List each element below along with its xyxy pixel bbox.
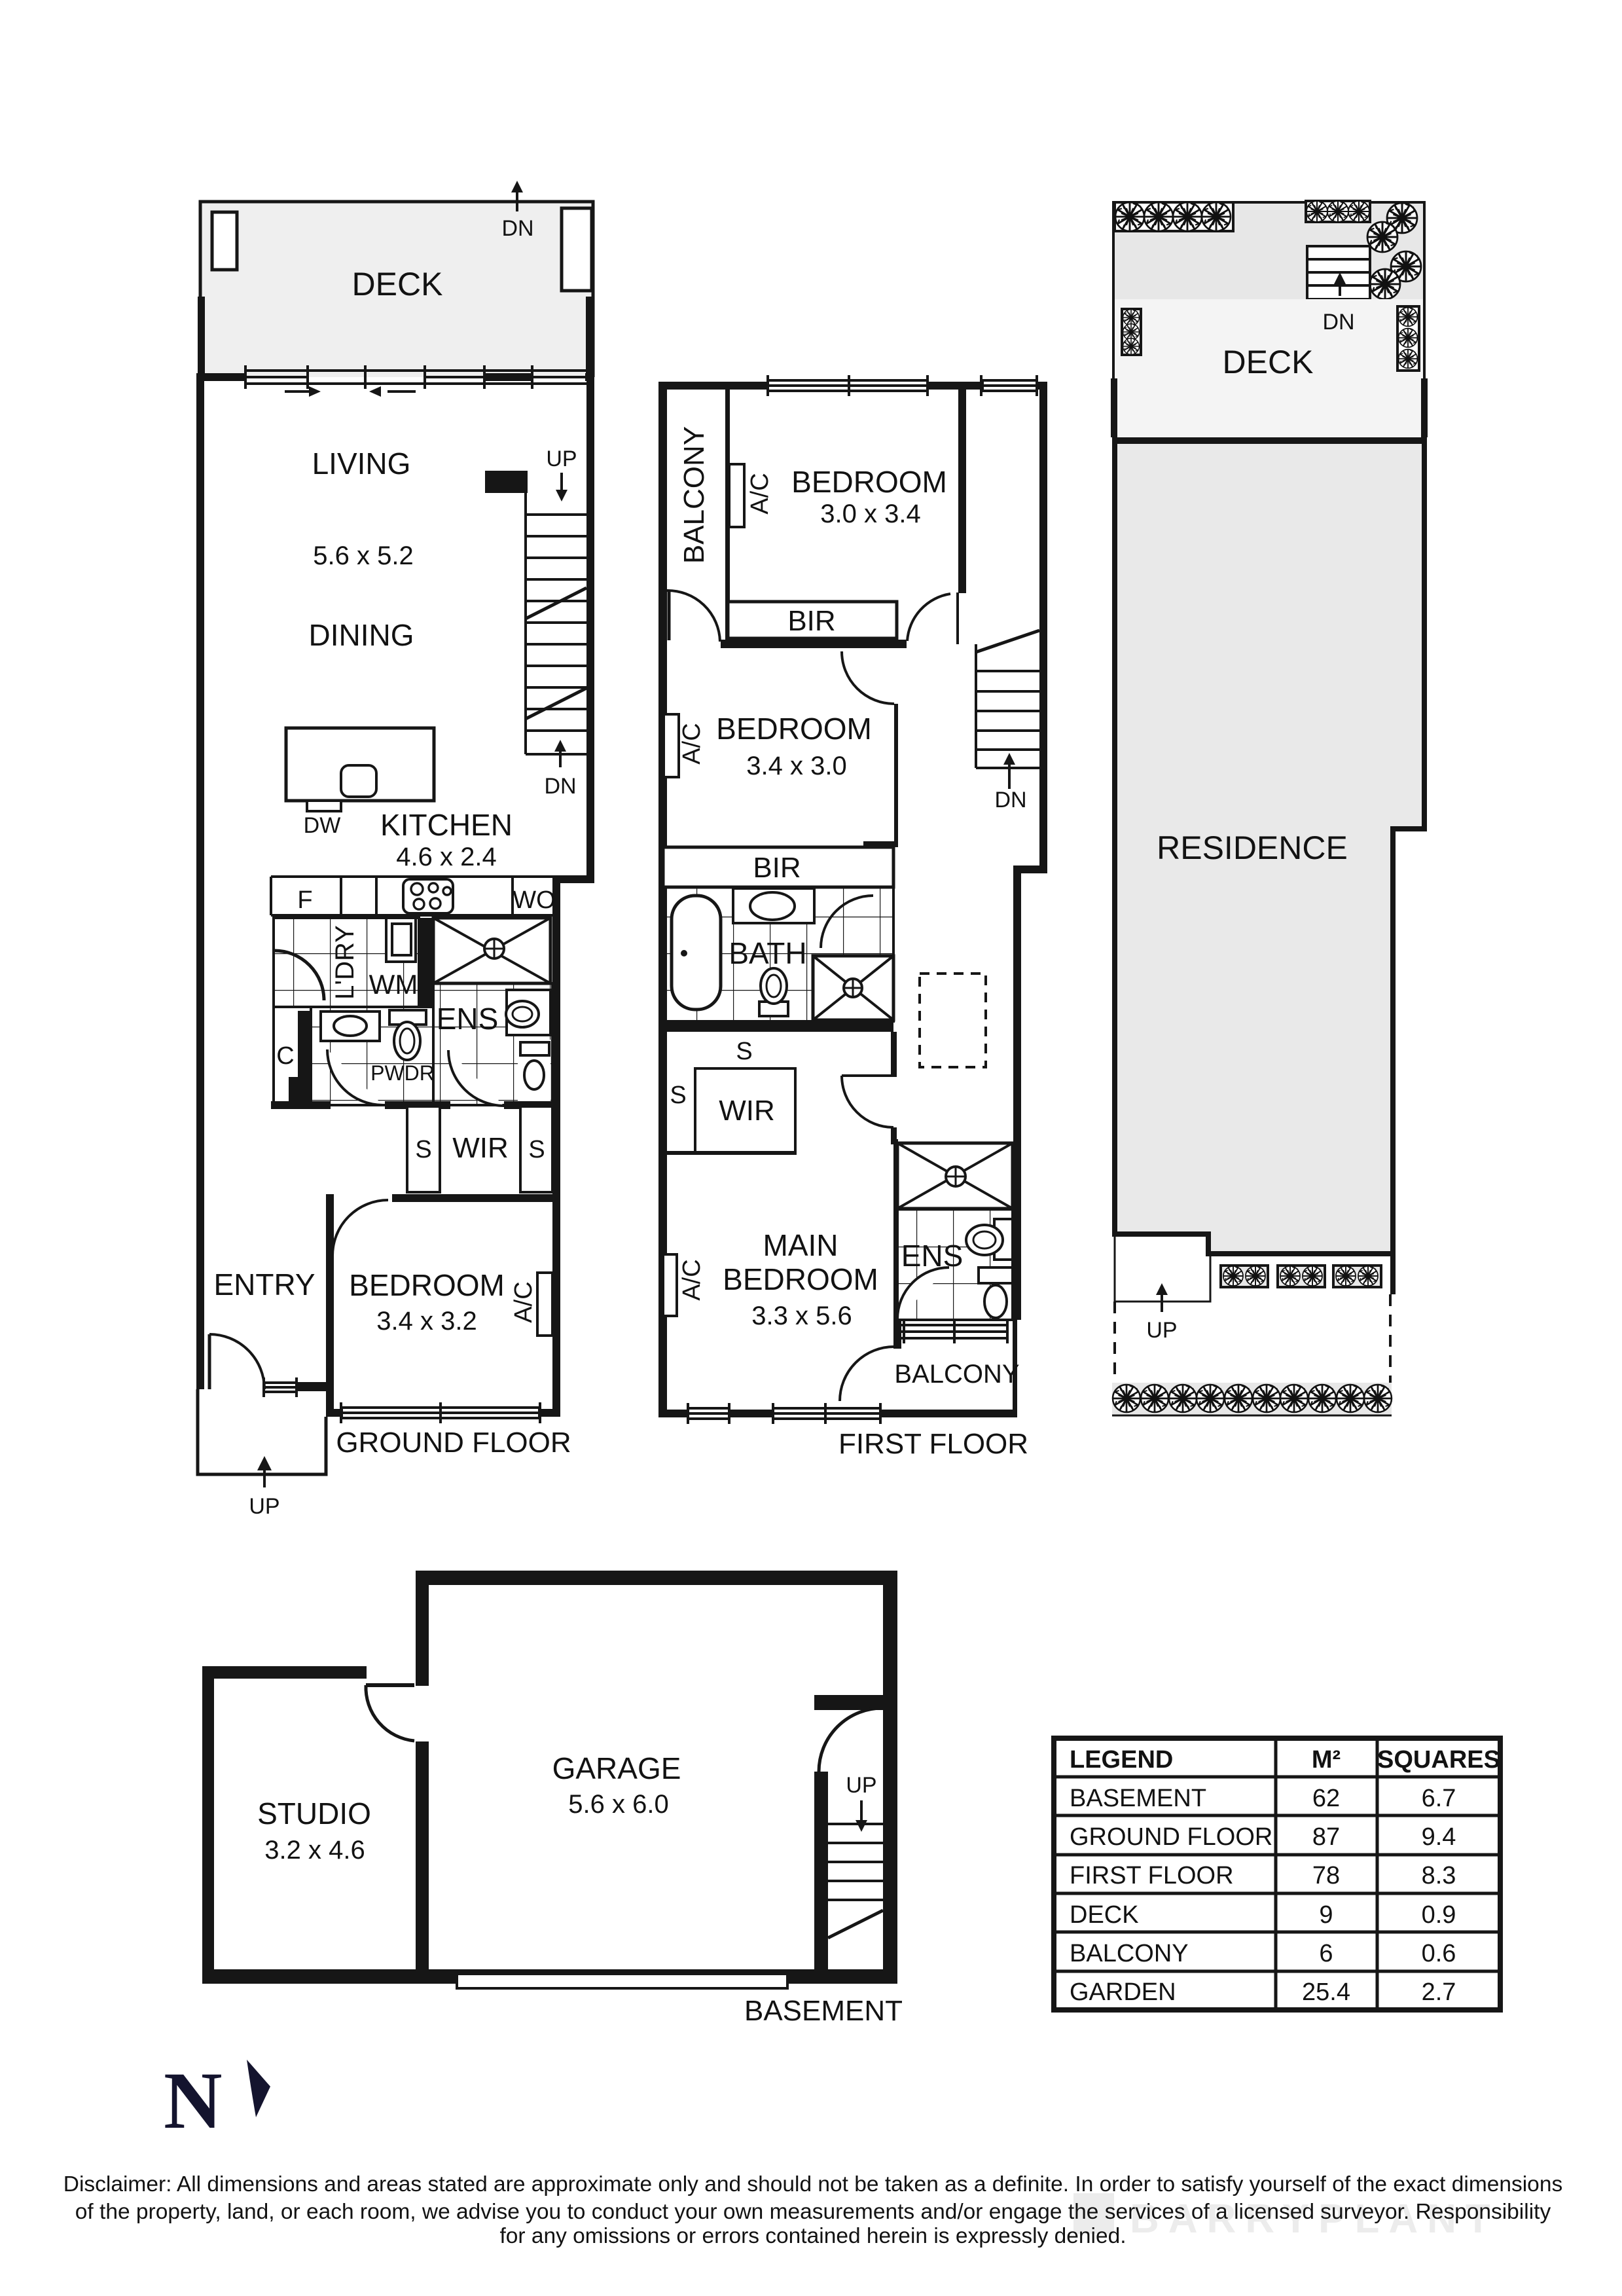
svg-text:DN: DN bbox=[1322, 310, 1354, 335]
svg-text:A/C: A/C bbox=[746, 473, 774, 514]
svg-text:FIRST FLOOR: FIRST FLOOR bbox=[1070, 1862, 1234, 1889]
svg-text:8.3: 8.3 bbox=[1422, 1862, 1456, 1889]
svg-text:UP: UP bbox=[846, 1773, 876, 1798]
svg-text:S: S bbox=[736, 1038, 752, 1065]
svg-text:PWDR: PWDR bbox=[370, 1061, 435, 1085]
svg-text:3.0 x 3.4: 3.0 x 3.4 bbox=[820, 500, 920, 528]
svg-text:87: 87 bbox=[1312, 1823, 1340, 1851]
svg-text:4.6 x 2.4: 4.6 x 2.4 bbox=[396, 843, 496, 871]
svg-text:DW: DW bbox=[304, 813, 341, 838]
svg-text:3.2 x 4.6: 3.2 x 4.6 bbox=[264, 1836, 365, 1865]
svg-text:UP: UP bbox=[1146, 1318, 1177, 1343]
svg-text:62: 62 bbox=[1312, 1785, 1340, 1812]
svg-text:BIR: BIR bbox=[787, 605, 835, 637]
svg-text:BALCONY: BALCONY bbox=[894, 1360, 1019, 1389]
svg-text:2.7: 2.7 bbox=[1422, 1978, 1456, 2006]
svg-text:UP: UP bbox=[546, 446, 577, 471]
svg-text:A/C: A/C bbox=[678, 723, 706, 764]
svg-text:S: S bbox=[415, 1136, 431, 1163]
svg-text:BALCONY: BALCONY bbox=[678, 426, 710, 564]
svg-text:WIR: WIR bbox=[452, 1132, 509, 1164]
svg-text:RESIDENCE: RESIDENCE bbox=[1157, 829, 1348, 866]
svg-text:C: C bbox=[276, 1042, 294, 1070]
svg-text:3.4 x 3.2: 3.4 x 3.2 bbox=[376, 1307, 477, 1336]
svg-text:MAIN: MAIN bbox=[763, 1228, 838, 1262]
svg-text:BATH: BATH bbox=[729, 936, 806, 970]
svg-text:BEDROOM: BEDROOM bbox=[791, 465, 947, 499]
svg-text:DECK: DECK bbox=[1070, 1901, 1139, 1929]
svg-text:DN: DN bbox=[544, 774, 576, 799]
svg-text:L'DRY: L'DRY bbox=[331, 925, 359, 1000]
svg-text:78: 78 bbox=[1312, 1862, 1340, 1889]
svg-text:ENS: ENS bbox=[901, 1239, 964, 1273]
svg-text:9: 9 bbox=[1319, 1901, 1333, 1929]
svg-text:S: S bbox=[528, 1136, 545, 1163]
svg-text:6.7: 6.7 bbox=[1422, 1785, 1456, 1812]
svg-text:25.4: 25.4 bbox=[1302, 1978, 1350, 2006]
svg-text:BIR: BIR bbox=[753, 852, 801, 884]
svg-text:of the property, land, or each: of the property, land, or each room, we … bbox=[75, 2200, 1551, 2224]
svg-text:5.6 x 5.2: 5.6 x 5.2 bbox=[313, 541, 413, 570]
svg-text:WO: WO bbox=[513, 886, 555, 914]
svg-text:6: 6 bbox=[1319, 1940, 1333, 1967]
svg-text:SQUARES: SQUARES bbox=[1377, 1746, 1500, 1774]
svg-text:A/C: A/C bbox=[510, 1281, 537, 1322]
svg-text:S: S bbox=[670, 1082, 686, 1109]
svg-text:3.4 x 3.0: 3.4 x 3.0 bbox=[746, 752, 846, 780]
svg-text:M²: M² bbox=[1312, 1746, 1341, 1774]
svg-text:WM: WM bbox=[369, 969, 418, 1000]
svg-text:GROUND FLOOR: GROUND FLOOR bbox=[1070, 1823, 1272, 1851]
svg-text:3.3 x 5.6: 3.3 x 5.6 bbox=[751, 1302, 852, 1330]
svg-text:BASEMENT: BASEMENT bbox=[1070, 1785, 1206, 1812]
svg-text:BEDROOM: BEDROOM bbox=[716, 712, 872, 746]
svg-text:for any omissions or errors co: for any omissions or errors contained he… bbox=[499, 2224, 1126, 2248]
svg-text:DINING: DINING bbox=[309, 618, 414, 652]
svg-text:BEDROOM: BEDROOM bbox=[723, 1262, 878, 1296]
svg-text:STUDIO: STUDIO bbox=[257, 1796, 371, 1831]
svg-text:GARDEN: GARDEN bbox=[1070, 1978, 1176, 2006]
svg-text:A/C: A/C bbox=[678, 1259, 706, 1300]
svg-text:ENTRY: ENTRY bbox=[213, 1267, 315, 1302]
svg-text:DECK: DECK bbox=[352, 266, 443, 302]
svg-text:0.6: 0.6 bbox=[1422, 1940, 1456, 1967]
svg-text:N: N bbox=[164, 2056, 223, 2145]
svg-text:5.6 x 6.0: 5.6 x 6.0 bbox=[568, 1790, 668, 1819]
svg-text:GARAGE: GARAGE bbox=[552, 1751, 681, 1785]
svg-text:GROUND FLOOR: GROUND FLOOR bbox=[336, 1427, 571, 1459]
svg-text:WIR: WIR bbox=[719, 1095, 775, 1127]
svg-text:BALCONY: BALCONY bbox=[1070, 1940, 1189, 1967]
svg-text:BEDROOM: BEDROOM bbox=[349, 1268, 505, 1302]
svg-text:DECK: DECK bbox=[1223, 344, 1314, 380]
svg-text:ENS: ENS bbox=[437, 1002, 499, 1036]
svg-text:9.4: 9.4 bbox=[1422, 1823, 1456, 1851]
svg-text:DN: DN bbox=[994, 788, 1026, 812]
svg-text:FIRST FLOOR: FIRST FLOOR bbox=[838, 1428, 1028, 1460]
svg-text:F: F bbox=[297, 886, 312, 914]
svg-text:LEGEND: LEGEND bbox=[1070, 1746, 1173, 1774]
svg-text:Disclaimer: All dimensions and: Disclaimer: All dimensions and areas sta… bbox=[63, 2172, 1562, 2196]
svg-text:DN: DN bbox=[501, 216, 533, 241]
svg-text:BASEMENT: BASEMENT bbox=[744, 1995, 903, 2027]
svg-text:0.9: 0.9 bbox=[1422, 1901, 1456, 1929]
svg-text:LIVING: LIVING bbox=[312, 446, 411, 481]
svg-text:UP: UP bbox=[249, 1494, 279, 1519]
svg-text:KITCHEN: KITCHEN bbox=[380, 808, 513, 842]
